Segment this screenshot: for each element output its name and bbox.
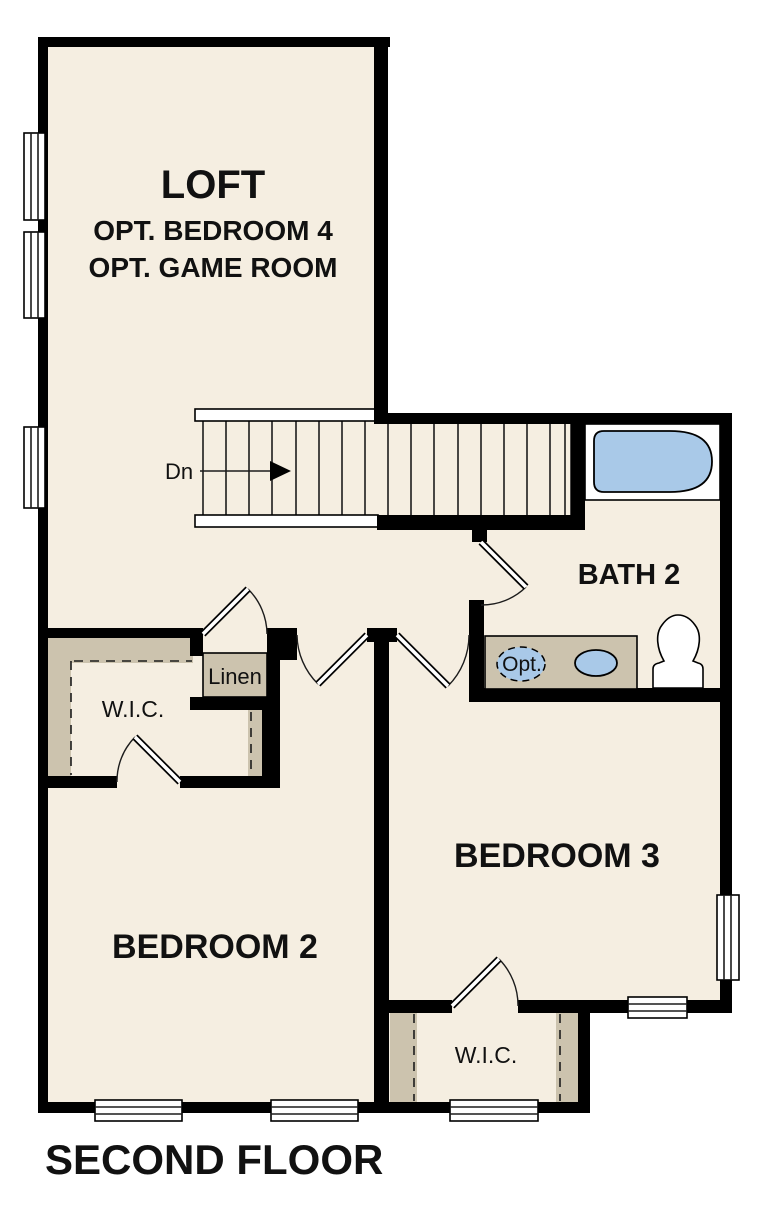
wic-lower-left-shelf: [390, 1013, 417, 1102]
window: [271, 1100, 358, 1121]
floor-plan-svg: Dn: [0, 0, 772, 1225]
wall-bath-left: [469, 600, 484, 702]
window: [95, 1100, 182, 1121]
wic-upper-left-shelf: [48, 638, 71, 776]
wic-upper-right-shelf: [248, 710, 262, 777]
wall-bath-door-post: [472, 515, 487, 542]
window: [717, 895, 739, 980]
wall-right-wing-top: [374, 413, 732, 424]
wall-stair-end: [571, 413, 585, 530]
window: [450, 1100, 538, 1121]
wall-bath-bottom: [469, 688, 732, 702]
wall-wic-upper-right: [262, 710, 280, 787]
wall-bed2-bed3-divider: [374, 628, 389, 1113]
window: [628, 997, 687, 1018]
wall-hall-post-center: [367, 628, 397, 642]
vanity-opt-label: Opt.: [502, 653, 542, 676]
bathtub: [594, 431, 712, 492]
window: [24, 232, 45, 318]
wall-hall-post-left: [280, 628, 297, 660]
sink: [575, 650, 617, 676]
loft-opt-gameroom-label: OPT. GAME ROOM: [89, 252, 338, 283]
wall-wic-upper-bottom-right: [180, 776, 280, 788]
bedroom2-label: BEDROOM 2: [112, 928, 318, 966]
bedroom3-label: BEDROOM 3: [454, 837, 660, 875]
toilet: [653, 615, 703, 688]
wall-wic-lower-right: [578, 1000, 590, 1113]
loft-label: LOFT: [161, 163, 265, 207]
wall-top: [38, 37, 390, 47]
linen-label: Linen: [208, 664, 262, 689]
wall-wic-upper-bottom-left: [45, 776, 117, 788]
loft-opt-bedroom4-label: OPT. BEDROOM 4: [93, 215, 333, 246]
stairs-dn-label: Dn: [165, 459, 193, 484]
wall-wic-upper-top: [45, 628, 193, 638]
window: [24, 133, 45, 220]
window: [24, 427, 45, 508]
wall-loft-right: [374, 37, 388, 424]
stair-rail-bottom: [195, 515, 378, 527]
floor-plan-page: Dn: [0, 0, 772, 1225]
wall-linen-bottom: [190, 697, 280, 710]
page-title: SECOND FLOOR: [45, 1136, 383, 1183]
bath2-label: BATH 2: [578, 559, 681, 591]
wall-wic-lower-top-left: [383, 1000, 452, 1013]
stair-rail-top: [195, 409, 378, 421]
wic-lower-label: W.I.C.: [455, 1042, 518, 1068]
wic-upper-label: W.I.C.: [102, 696, 165, 722]
right-wing-floor: [381, 418, 726, 1006]
wic-lower-right-shelf: [556, 1013, 578, 1102]
